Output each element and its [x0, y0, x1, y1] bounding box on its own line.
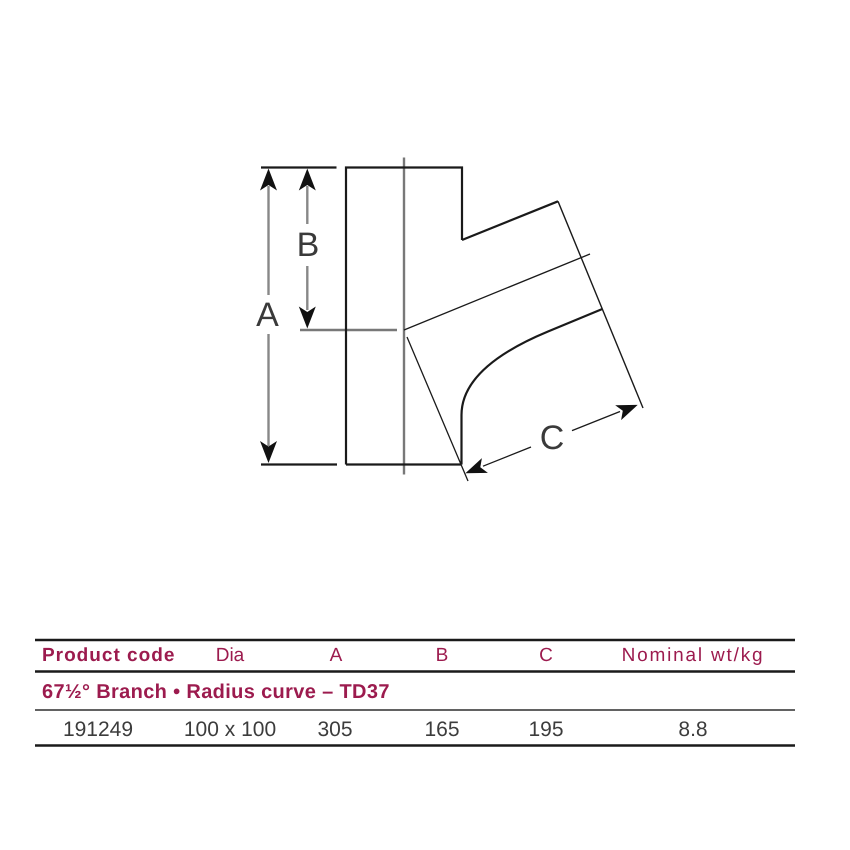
svg-text:195: 195 — [528, 718, 563, 741]
svg-text:165: 165 — [424, 718, 459, 741]
svg-text:Nominal wt/kg: Nominal wt/kg — [622, 645, 765, 666]
svg-text:B: B — [436, 645, 449, 666]
svg-text:67½° Branch • Radius curve – T: 67½° Branch • Radius curve – TD37 — [42, 681, 390, 703]
svg-text:Product code: Product code — [42, 645, 175, 666]
svg-text:B: B — [297, 226, 320, 264]
svg-text:Dia: Dia — [216, 645, 245, 666]
svg-text:8.8: 8.8 — [678, 718, 707, 741]
svg-text:100 x 100: 100 x 100 — [184, 718, 276, 741]
svg-text:C: C — [539, 645, 553, 666]
svg-text:C: C — [540, 419, 565, 457]
svg-text:305: 305 — [317, 718, 352, 741]
svg-text:A: A — [330, 645, 343, 666]
svg-text:191249: 191249 — [63, 718, 133, 741]
svg-text:A: A — [256, 296, 279, 334]
